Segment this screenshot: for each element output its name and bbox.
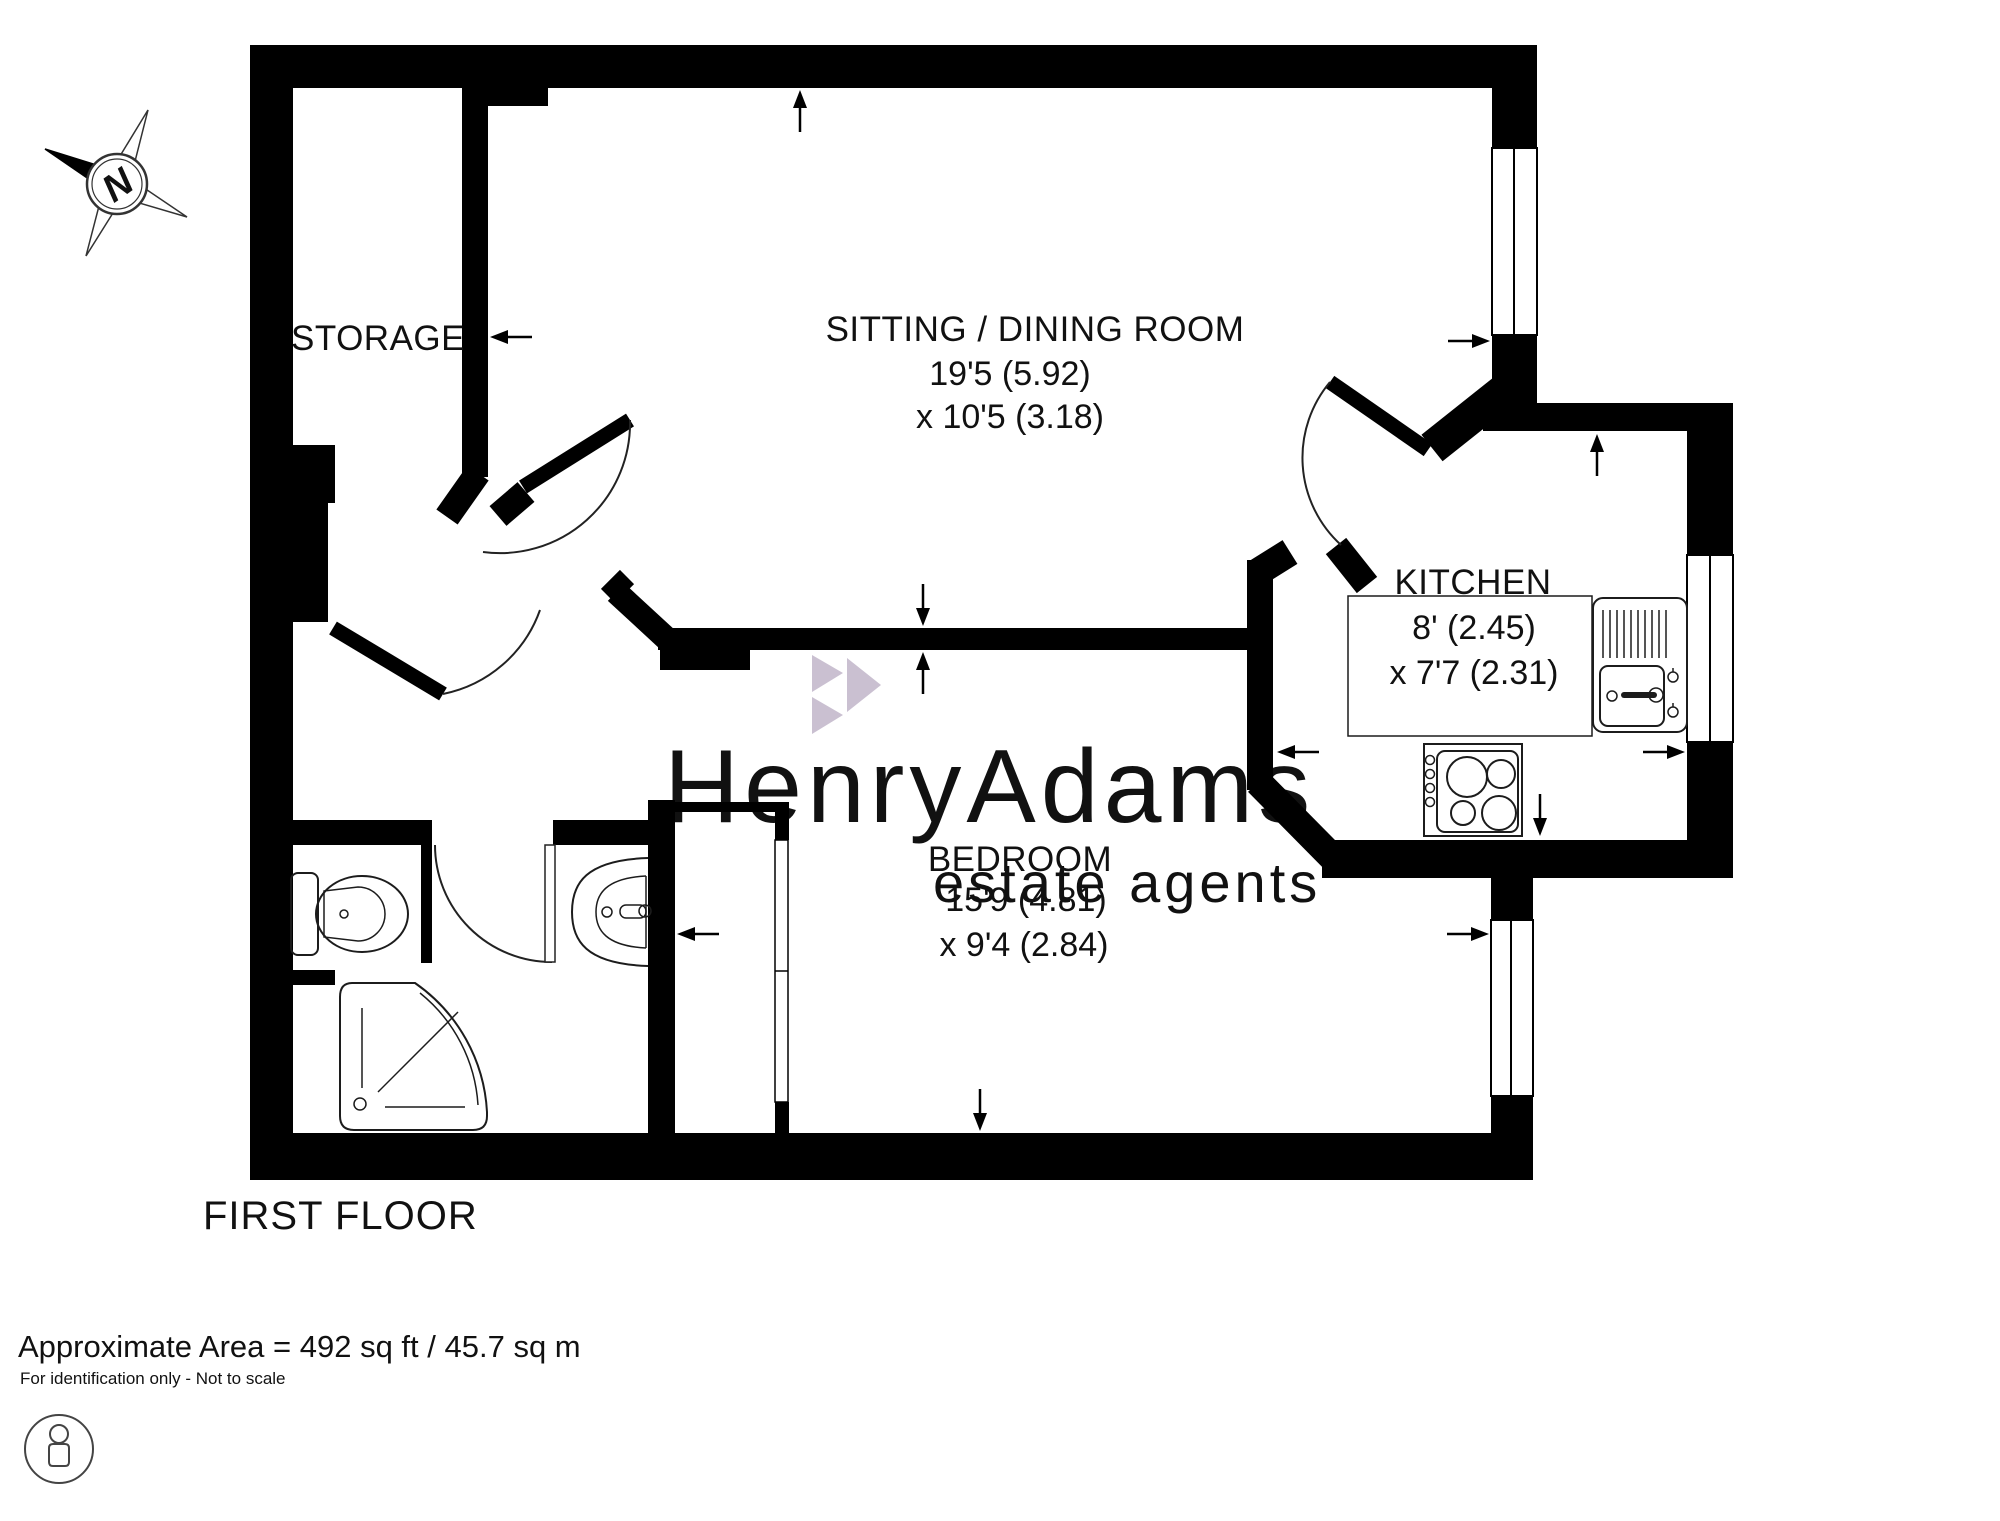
wall-divider-cap <box>608 577 627 596</box>
wall-kitchen-bottom <box>1322 840 1733 878</box>
arrow-storage-west <box>490 330 532 344</box>
watermark-logo-triangle <box>847 658 881 712</box>
bathroom-door-arc <box>435 845 552 962</box>
room-dim2-sitting: x 10'5 (3.18) <box>916 398 1104 436</box>
room-dim2-kitchen: x 7'7 (2.31) <box>1389 654 1558 692</box>
wall-storage-top-stub <box>462 88 548 106</box>
arrow-kitchen-east <box>1643 745 1685 759</box>
sitting-window <box>1492 148 1537 335</box>
bedroom-partition-opening <box>775 840 788 1102</box>
wall-divider-diagonal <box>616 592 668 640</box>
hob <box>1424 744 1522 836</box>
person-icon <box>25 1415 93 1483</box>
approximate-area-text: Approximate Area = 492 sq ft / 45.7 sq m <box>18 1329 581 1364</box>
kitchen-sink-unit <box>1593 598 1687 732</box>
wall-storage-bottom <box>250 445 335 470</box>
wall-partition-stub-top <box>775 802 789 840</box>
arrow-bedroom-north <box>916 652 930 694</box>
floorplan-drawing: HenryAdams estate agents <box>0 0 2000 1521</box>
wall-hall-east <box>648 800 675 845</box>
arrow-sitting-south <box>916 584 930 626</box>
room-dim1-sitting: 19'5 (5.92) <box>929 355 1090 393</box>
compass: N <box>45 110 187 256</box>
room-label-bedroom: BEDROOM <box>928 840 1112 879</box>
wall-bathroom-top-left <box>293 820 432 845</box>
wall-bathroom-east <box>648 845 675 1133</box>
hob-burner <box>1487 760 1515 788</box>
kitchen-window <box>1687 555 1733 742</box>
toilet <box>291 873 408 955</box>
arrow-sitting-north <box>793 90 807 132</box>
wall-kitchen-door-hinge-diagonal <box>1432 390 1505 448</box>
wall-kitchen-west-cap <box>1258 552 1290 572</box>
wall-hall-bedroom-thin <box>675 802 775 812</box>
wall-divider-thick-end <box>660 628 750 670</box>
wall-storage-right <box>462 88 488 477</box>
bedroom-window <box>1491 920 1533 1096</box>
bathroom-fixtures <box>291 858 651 1130</box>
wall-bedroom-east-lower <box>1491 1096 1533 1153</box>
wall-hall-hinge-block <box>498 492 526 516</box>
lobby-door-arc <box>443 610 540 694</box>
arrow-kitchen-north <box>1590 434 1604 476</box>
wall-storage-diagonal-stub <box>447 473 478 517</box>
hob-burner <box>1447 757 1487 797</box>
room-dim1-bedroom: 15'9 (4.81) <box>945 881 1106 919</box>
wall-kitchen-top <box>1483 403 1733 431</box>
kitchen-door-leaf <box>1330 382 1428 450</box>
room-label-kitchen: KITCHEN <box>1394 563 1551 602</box>
wall-partition-stub-bottom <box>775 1102 789 1133</box>
sitting-door-leaf <box>523 420 630 487</box>
room-label-storage: STORAGE <box>291 319 465 358</box>
floor-title: FIRST FLOOR <box>203 1194 478 1238</box>
arrow-sitting-east <box>1448 334 1490 348</box>
room-dim2-bedroom: x 9'4 (2.84) <box>939 926 1108 964</box>
disclaimer-text: For identification only - Not to scale <box>20 1369 286 1388</box>
wall-kitchen-west <box>1247 560 1273 790</box>
wall-left <box>250 45 293 1180</box>
bathroom-door-leaf <box>545 845 555 962</box>
arrow-bedroom-east <box>1447 927 1489 941</box>
watermark-logo-triangle <box>812 655 843 692</box>
hob-burner <box>1451 801 1475 825</box>
shower <box>340 983 487 1130</box>
wall-kitchen-door-stub <box>1336 546 1367 585</box>
arrow-kitchen-south <box>1533 794 1547 836</box>
wall-bottom <box>250 1133 1533 1180</box>
arrow-bedroom-south <box>973 1089 987 1131</box>
wall-lobby-left <box>293 497 328 622</box>
arrow-bedroom-west <box>677 927 719 941</box>
wall-bathroom-top-right <box>553 820 648 845</box>
wall-top <box>250 45 1537 88</box>
wall-bathroom-stub <box>421 830 432 963</box>
kitchen-door-arc <box>1302 382 1341 545</box>
wall-right-upper <box>1492 45 1537 148</box>
washbasin <box>572 858 651 966</box>
wall-bedroom-east-upper <box>1491 878 1533 920</box>
room-dim1-kitchen: 8' (2.45) <box>1412 609 1536 647</box>
hob-burner <box>1482 796 1516 830</box>
floorplan-page: HenryAdams estate agents <box>0 0 2000 1521</box>
wall-kitchen-east-upper <box>1687 431 1733 555</box>
watermark-brand-text: HenryAdams <box>664 729 1315 845</box>
lobby-door-leaf <box>333 628 443 694</box>
sink-drainer-ribs <box>1603 610 1666 658</box>
room-label-sitting: SITTING / DINING ROOM <box>826 310 1245 349</box>
wall-shower-stub <box>293 970 335 985</box>
